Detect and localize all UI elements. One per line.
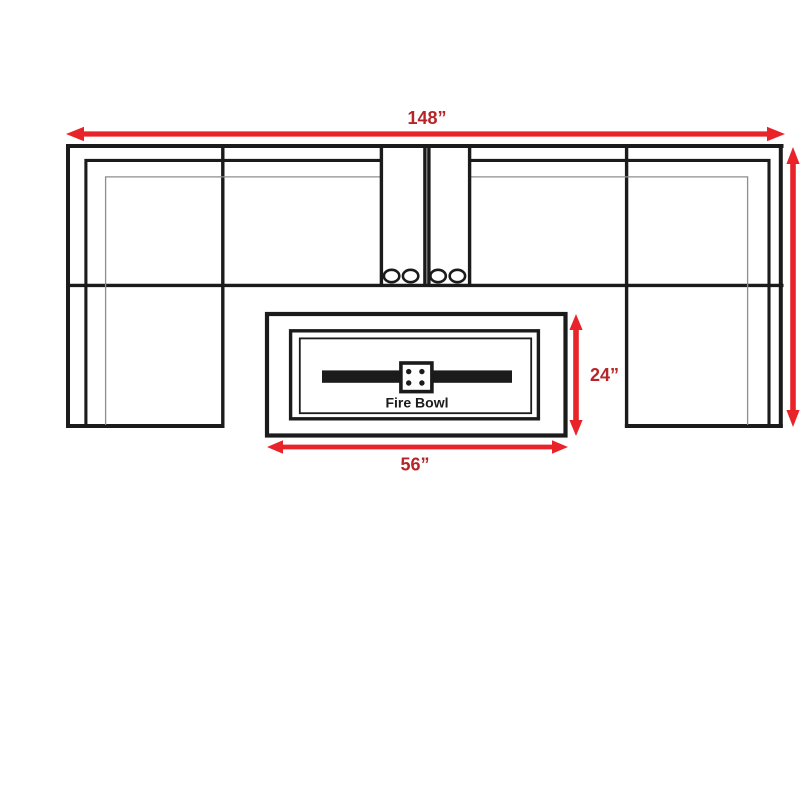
cup-holder: [430, 270, 445, 282]
cup-holder: [384, 270, 399, 282]
igniter-dot: [419, 380, 424, 385]
overall-depth-arrow: [786, 147, 799, 427]
dimension-overall-width: 148”: [66, 108, 785, 141]
right-armrest-inner-edge: [470, 160, 769, 426]
cup-holder: [403, 270, 418, 282]
fire-bowl-igniter: [401, 363, 432, 392]
igniter-dot: [406, 369, 411, 374]
center-consoles: [381, 147, 469, 285]
fire-bowl-height-arrow: [569, 314, 582, 436]
right-cushion-edge: [470, 177, 748, 425]
fire-bowl-width-arrow: [267, 440, 568, 454]
furniture-dimension-diagram: Fire Bowl 148” 24” 56”: [0, 0, 800, 800]
fire-bowl-height-label: 24”: [590, 365, 619, 385]
fire-bowl: Fire Bowl: [267, 314, 566, 436]
dimension-overall-depth: [786, 147, 799, 427]
fire-bowl-width-label: 56”: [400, 455, 429, 475]
fire-bowl-label: Fire Bowl: [385, 395, 448, 411]
dimension-fire-bowl-height: 24”: [569, 314, 619, 436]
left-armrest-inner-edge: [86, 160, 382, 426]
dimension-fire-bowl-width: 56”: [267, 440, 568, 474]
igniter-dot: [419, 369, 424, 374]
igniter-dot: [406, 380, 411, 385]
cup-holder: [450, 270, 465, 282]
overall-width-arrow: [66, 127, 785, 141]
left-cushion-edge: [106, 177, 382, 425]
overall-width-label: 148”: [407, 108, 446, 128]
